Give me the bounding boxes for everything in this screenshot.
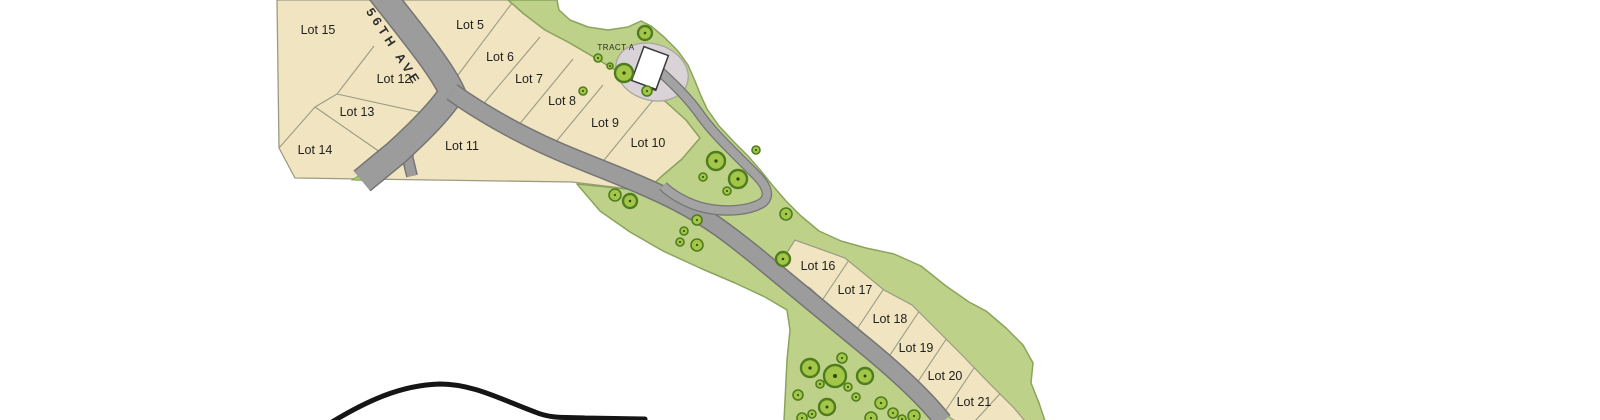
- tree-icon: [691, 239, 703, 251]
- plat-map-canvas: Lot 15Lot 5Lot 6Lot 7Lot 8Lot 9Lot 10Lot…: [0, 0, 1600, 420]
- tree-icon: [692, 215, 702, 225]
- lot-label: Lot 6: [486, 50, 514, 64]
- tree-icon: [729, 170, 747, 188]
- tree-icon: [857, 368, 873, 384]
- tree-icon: [707, 152, 725, 170]
- tree-icon: [865, 412, 877, 420]
- tree-icon: [699, 173, 707, 181]
- tree-icon: [816, 380, 824, 388]
- lot-label: Lot 11: [445, 139, 479, 153]
- tree-icon: [680, 227, 688, 235]
- lot-label: Lot 8: [548, 94, 576, 108]
- lot-label: Lot 10: [631, 136, 666, 150]
- tree-icon: [852, 393, 860, 401]
- lot-label: Lot 5: [456, 18, 484, 32]
- tree-icon: [875, 397, 887, 409]
- tree-icon: [780, 208, 792, 220]
- lot-label: Lot 17: [838, 283, 873, 297]
- lot-label: Lot 15: [301, 23, 336, 37]
- tree-icon: [793, 390, 803, 400]
- lot-label: Lot 18: [873, 312, 908, 326]
- lot-label: Lot 14: [298, 143, 333, 157]
- lot-label: Lot 7: [515, 72, 543, 86]
- tree-icon: [819, 399, 835, 415]
- tract-a-label: TRACT A: [597, 43, 634, 52]
- tree-icon: [723, 187, 731, 195]
- tree-icon: [609, 189, 621, 201]
- tree-icon: [801, 359, 819, 377]
- lot-label: Lot 19: [899, 341, 934, 355]
- lot-label: Lot 20: [928, 369, 963, 383]
- tree-icon: [615, 64, 633, 82]
- tree-icon: [824, 365, 846, 387]
- tree-icon: [752, 146, 760, 154]
- boundary-curve: [332, 384, 645, 420]
- tree-icon: [638, 26, 652, 40]
- lot-label: Lot 9: [591, 116, 619, 130]
- tree-icon: [888, 408, 898, 418]
- lot-label: Lot 21: [957, 395, 992, 409]
- plat-map: Lot 15Lot 5Lot 6Lot 7Lot 8Lot 9Lot 10Lot…: [0, 0, 1600, 420]
- tree-icon: [579, 87, 587, 95]
- tree-icon: [594, 54, 602, 62]
- tree-icon: [808, 410, 816, 418]
- tree-icon: [898, 415, 906, 420]
- tree-icon: [623, 194, 637, 208]
- tree-icon: [908, 410, 920, 420]
- tree-icon: [844, 383, 852, 391]
- tree-icon: [797, 413, 807, 420]
- lot-label: Lot 16: [801, 259, 836, 273]
- tree-icon: [607, 63, 613, 69]
- lot-label: Lot 13: [340, 105, 375, 119]
- tree-icon: [837, 353, 847, 363]
- tree-icon: [676, 238, 684, 246]
- tree-icon: [642, 86, 652, 96]
- tree-icon: [776, 252, 790, 266]
